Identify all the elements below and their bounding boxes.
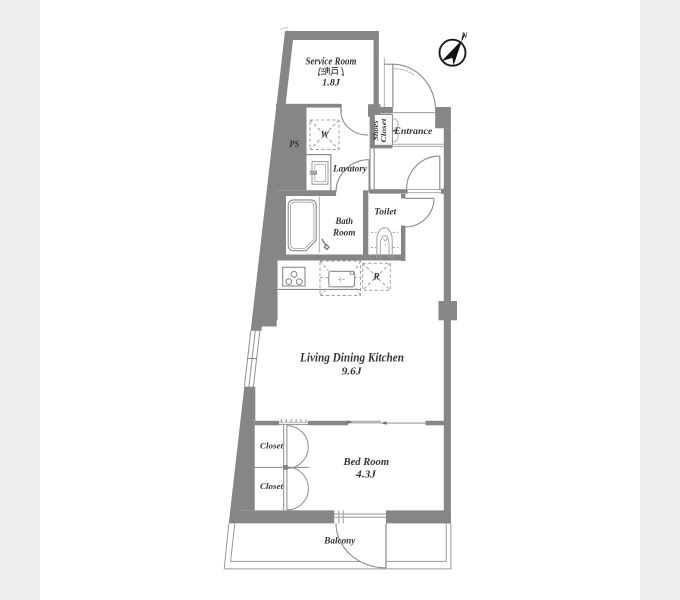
svg-text:1.8J: 1.8J xyxy=(322,79,340,89)
svg-text:Service Room: Service Room xyxy=(306,56,357,67)
svg-text:R: R xyxy=(372,272,379,282)
svg-text:Closet: Closet xyxy=(260,440,284,450)
svg-text:Closet: Closet xyxy=(260,481,284,491)
svg-text:Entrance: Entrance xyxy=(393,127,433,137)
svg-text:Toilet: Toilet xyxy=(374,207,396,217)
svg-text:W: W xyxy=(321,129,330,139)
svg-text:4.3J: 4.3J xyxy=(355,469,377,480)
svg-text:Bath: Bath xyxy=(335,217,353,227)
svg-text:Closet: Closet xyxy=(379,117,388,142)
svg-text:PS: PS xyxy=(289,139,299,149)
svg-text:Bed Room: Bed Room xyxy=(343,456,390,468)
svg-text:9.6J: 9.6J xyxy=(342,366,363,378)
svg-text:Balcony: Balcony xyxy=(323,536,356,546)
svg-text:N: N xyxy=(460,30,468,40)
svg-text:Lavatory: Lavatory xyxy=(332,165,368,175)
svg-text:Living Dining Kitchen: Living Dining Kitchen xyxy=(299,351,404,365)
svg-text:Room: Room xyxy=(332,229,355,239)
